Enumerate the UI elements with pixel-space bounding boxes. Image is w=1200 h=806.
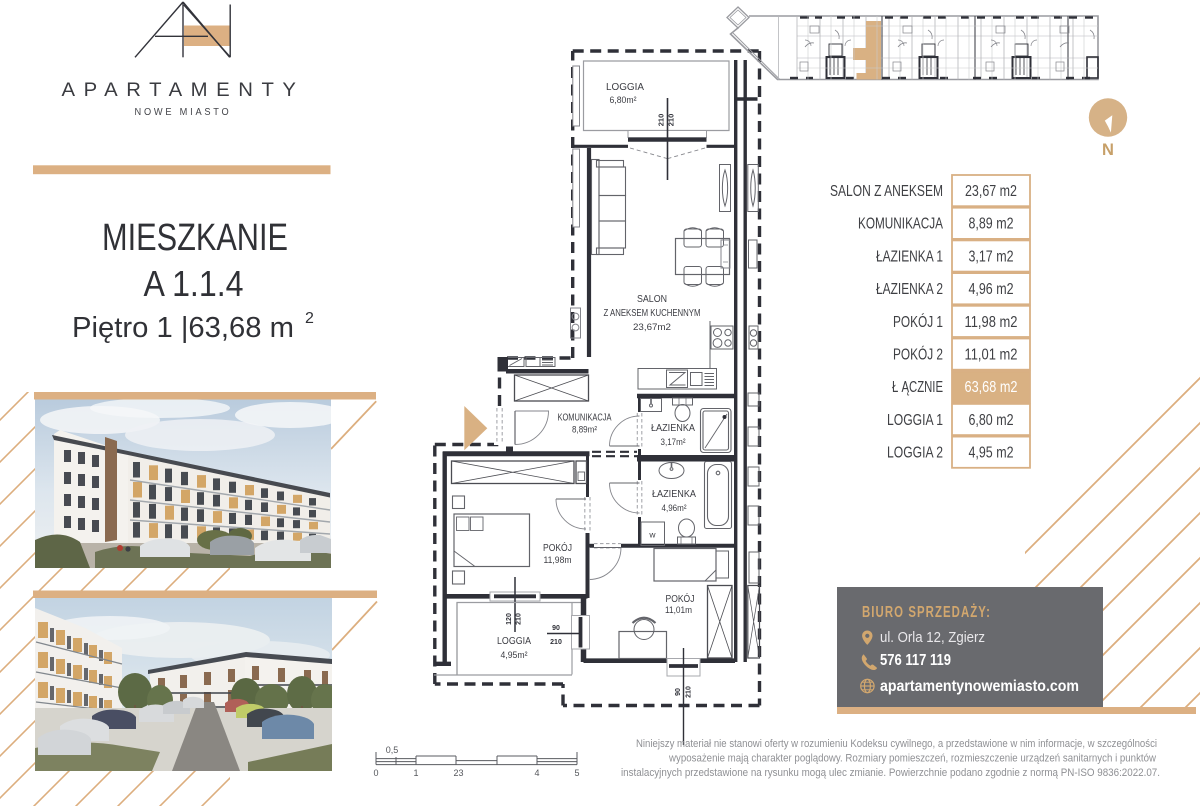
svg-text:11,98 m2: 11,98 m2	[965, 314, 1018, 331]
svg-text:w: w	[648, 530, 656, 540]
svg-text:POKÓJ 1: POKÓJ 1	[893, 314, 943, 331]
svg-text:210: 210	[516, 613, 523, 625]
svg-text:0: 0	[373, 768, 378, 778]
svg-text:LOGGIA 1: LOGGIA 1	[887, 412, 943, 429]
svg-text:5: 5	[574, 768, 579, 778]
svg-text:instalacyjnych przedstawione n: instalacyjnych przedstawione na rysunku …	[621, 767, 1160, 779]
svg-text:POKÓJ: POKÓJ	[543, 541, 572, 554]
svg-text:11,98m: 11,98m	[544, 555, 572, 566]
svg-text:A 1.1.4: A 1.1.4	[144, 263, 244, 304]
svg-text:ŁAZIENKA 2: ŁAZIENKA 2	[876, 281, 943, 298]
svg-text:210: 210	[550, 639, 562, 646]
svg-text:ŁAZIENKA 1: ŁAZIENKA 1	[876, 248, 943, 265]
svg-text:LOGGIA: LOGGIA	[497, 636, 531, 647]
svg-text:KOMUNIKACJA: KOMUNIKACJA	[558, 413, 612, 424]
svg-text:Ł ĄCZNIE: Ł ĄCZNIE	[892, 379, 943, 396]
svg-text:ŁAZIENKA: ŁAZIENKA	[651, 423, 695, 434]
svg-text:1: 1	[413, 768, 418, 778]
svg-text:8,89m²: 8,89m²	[572, 425, 597, 436]
svg-text:23,67m2: 23,67m2	[633, 322, 671, 333]
svg-text:4,96 m2: 4,96 m2	[969, 281, 1014, 298]
svg-text:23: 23	[453, 768, 463, 778]
svg-text:POKÓJ: POKÓJ	[666, 592, 695, 605]
svg-text:ŁAZIENKA: ŁAZIENKA	[652, 489, 696, 500]
svg-text:ul. Orla 12, Zgierz: ul. Orla 12, Zgierz	[880, 629, 985, 646]
svg-text:LOGGIA 2: LOGGIA 2	[887, 445, 943, 462]
svg-text:210: 210	[667, 114, 676, 127]
svg-text:6,80m²: 6,80m²	[610, 95, 637, 106]
svg-text:SALON: SALON	[637, 294, 667, 305]
svg-text:23,67 m2: 23,67 m2	[965, 183, 1017, 200]
svg-text:MIESZKANIE: MIESZKANIE	[102, 217, 288, 259]
svg-text:3,17m²: 3,17m²	[661, 437, 686, 448]
svg-text:0,5: 0,5	[386, 745, 399, 755]
svg-text:63,68 m2: 63,68 m2	[965, 379, 1018, 396]
svg-text:Niniejszy materiał nie stanowi: Niniejszy materiał nie stanowi oferty w …	[636, 738, 1157, 750]
svg-text:8,89 m2: 8,89 m2	[969, 216, 1014, 233]
svg-text:11,01 m2: 11,01 m2	[965, 347, 1018, 364]
svg-text:4: 4	[534, 768, 539, 778]
svg-text:210: 210	[657, 114, 666, 127]
svg-text:210: 210	[686, 686, 693, 698]
svg-text:apartamentynowemiasto.com: apartamentynowemiasto.com	[880, 678, 1079, 695]
svg-text:KOMUNIKACJA: KOMUNIKACJA	[858, 216, 943, 233]
svg-text:wyposażenie mają charakter pog: wyposażenie mają charakter poglądowy. Ro…	[668, 753, 1156, 765]
svg-text:NOWE MIASTO: NOWE MIASTO	[135, 107, 232, 118]
svg-text:APARTAMENTY: APARTAMENTY	[62, 80, 305, 101]
svg-text:4,95m²: 4,95m²	[501, 650, 528, 661]
svg-text:4,95 m2: 4,95 m2	[969, 445, 1014, 462]
svg-text:SALON Z ANEKSEM: SALON Z ANEKSEM	[830, 183, 943, 200]
svg-text:120: 120	[506, 613, 513, 625]
svg-text:3,17 m2: 3,17 m2	[969, 248, 1014, 265]
svg-text:90: 90	[552, 625, 560, 632]
svg-text:BIURO SPRZEDAŻY:: BIURO SPRZEDAŻY:	[862, 603, 991, 621]
svg-text:POKÓJ 2: POKÓJ 2	[893, 347, 943, 364]
svg-text:4,96m²: 4,96m²	[662, 503, 687, 514]
svg-text:2: 2	[305, 310, 314, 327]
svg-text:90: 90	[675, 688, 682, 696]
svg-text:Piętro 1 |63,68 m: Piętro 1 |63,68 m	[72, 312, 294, 344]
svg-text:11,01m: 11,01m	[665, 605, 692, 616]
svg-text:6,80 m2: 6,80 m2	[969, 412, 1014, 429]
svg-text:LOGGIA: LOGGIA	[606, 82, 644, 93]
svg-text:Z ANEKSEM KUCHENNYM: Z ANEKSEM KUCHENNYM	[604, 308, 701, 319]
svg-text:N: N	[1102, 141, 1114, 159]
svg-text:576 117 119: 576 117 119	[880, 652, 951, 669]
